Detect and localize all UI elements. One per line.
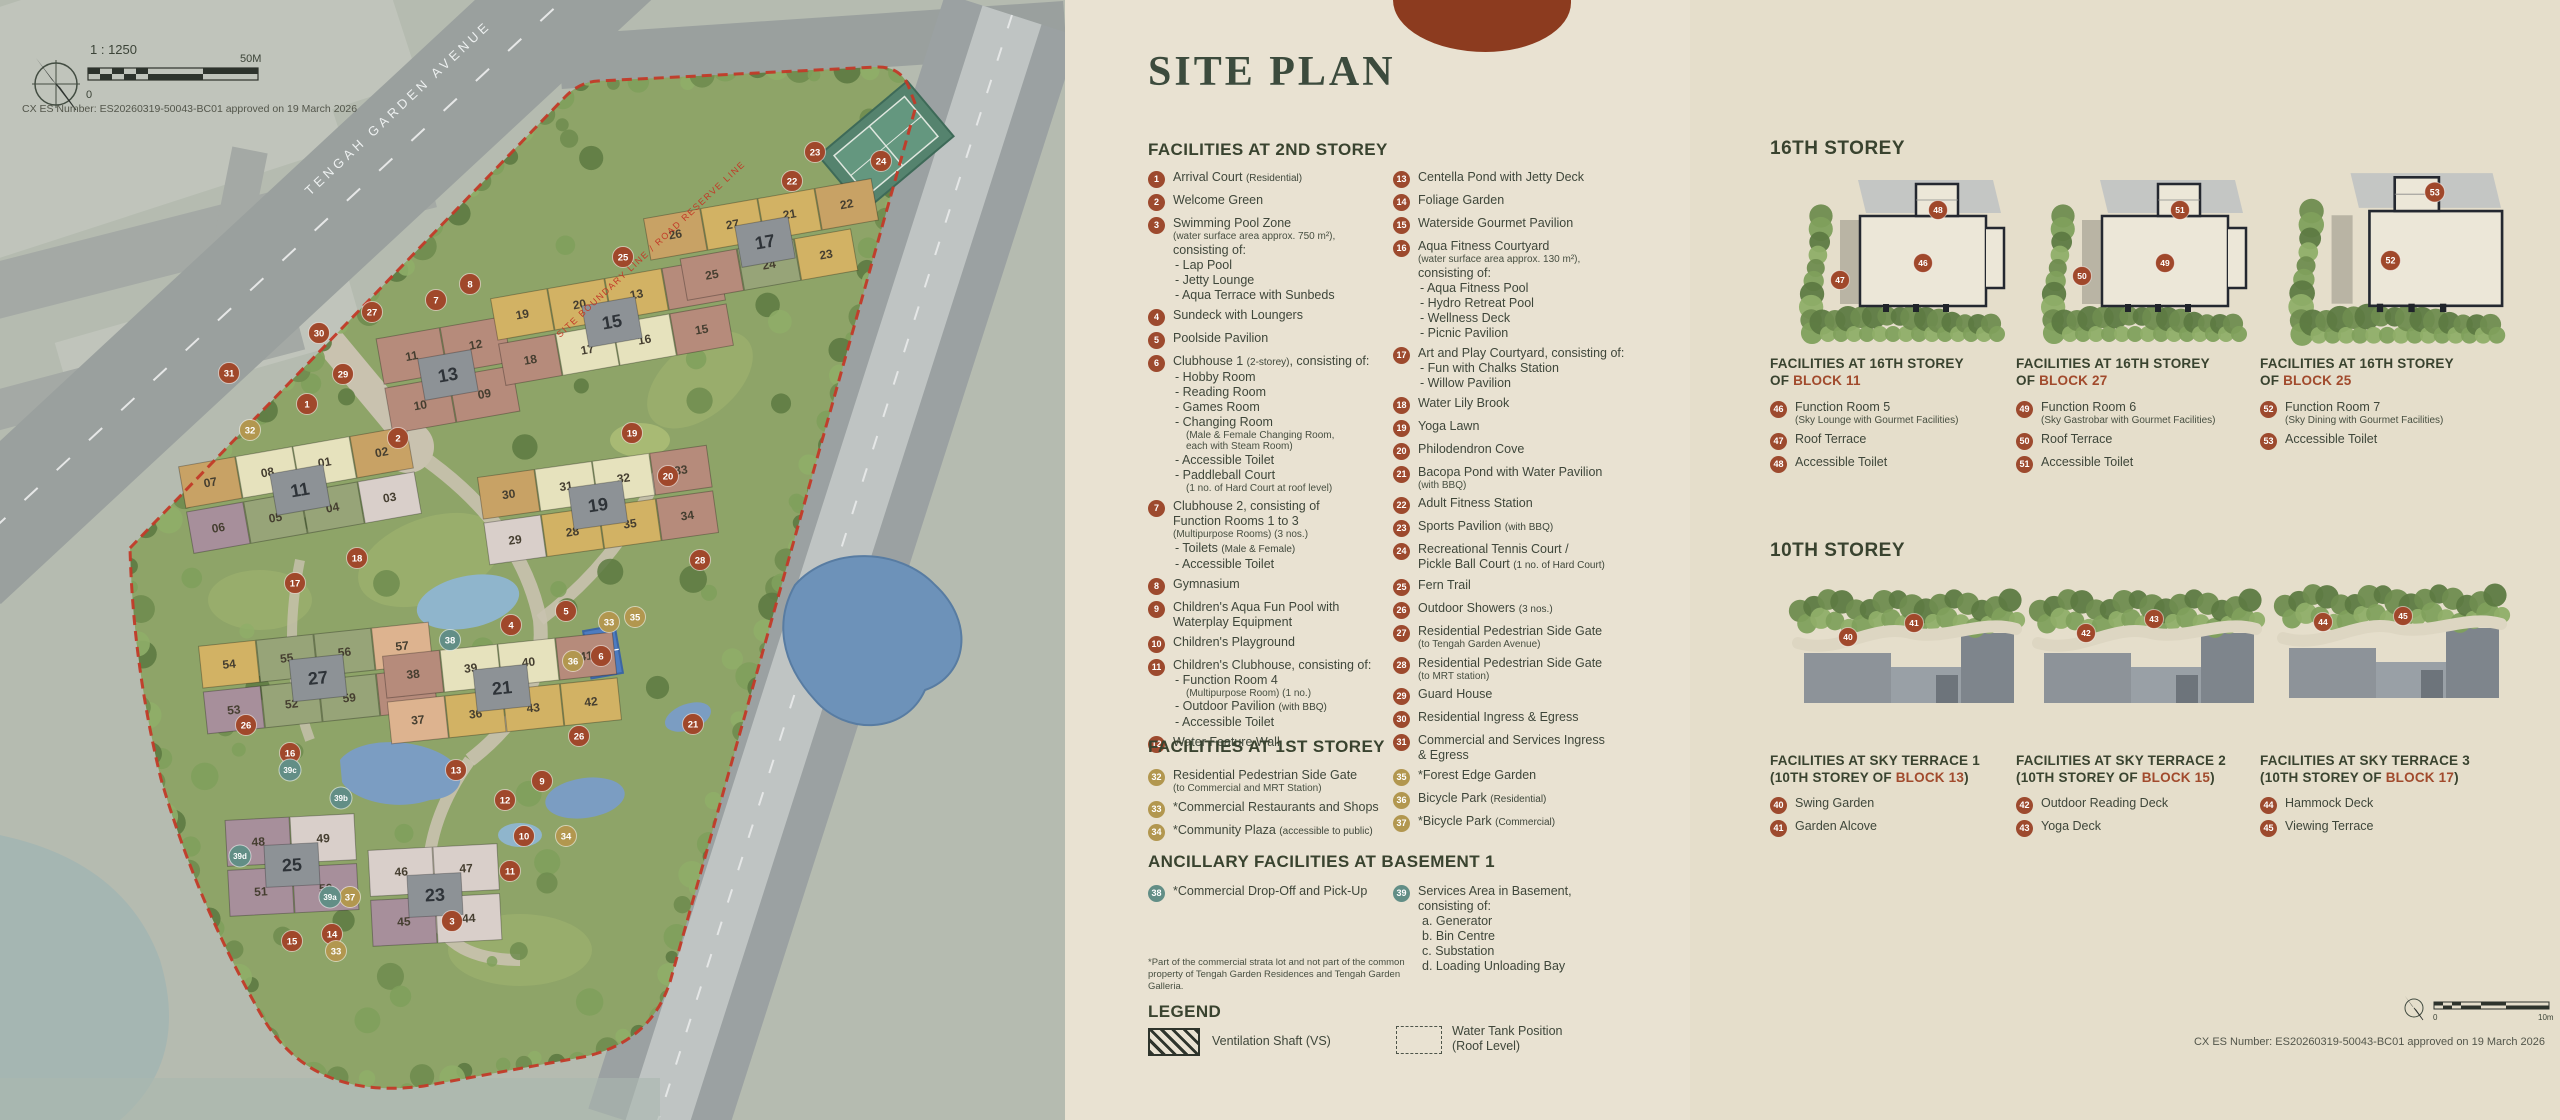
scale-zero: 0 — [86, 89, 92, 101]
facility-item-36: 36Bicycle Park (Residential) — [1393, 791, 1653, 809]
svg-text:22: 22 — [787, 177, 798, 188]
svg-text:44: 44 — [2318, 617, 2328, 627]
facility-list-block-25: 52Function Room 7(Sky Dining with Gourme… — [2260, 400, 2495, 450]
water-tank-label: Water Tank Position (Roof Level) — [1452, 1024, 1562, 1054]
facility-item-13: 13Centella Pond with Jetty Deck — [1393, 170, 1653, 188]
svg-text:38: 38 — [406, 667, 421, 682]
svg-text:48: 48 — [251, 834, 265, 849]
heading-16th-storey: 16TH STOREY — [1770, 138, 1905, 160]
facility-item-9: 9Children's Aqua Fun Pool withWaterplay … — [1148, 600, 1392, 630]
facility-badge-47: 47 — [1770, 433, 1787, 450]
ventilation-shaft-swatch — [1148, 1028, 1200, 1056]
facility-item-49: 49Function Room 6(Sky Gastrobar with Gou… — [2016, 400, 2251, 427]
facility-item-16: 16Aqua Fitness Courtyard(water surface a… — [1393, 239, 1653, 341]
plan-badge-42: 42 — [2077, 624, 2096, 643]
svg-text:17: 17 — [753, 230, 776, 253]
svg-text:27: 27 — [307, 667, 329, 689]
floorplan-16th-block-27: 514950 — [2030, 158, 2265, 348]
plan-badge-40: 40 — [1839, 628, 1858, 647]
map-badge-35: 35 — [625, 607, 646, 628]
facility-badge-16: 16 — [1393, 240, 1410, 257]
facility-badge-33: 33 — [1148, 801, 1165, 818]
svg-text:51: 51 — [2175, 205, 2185, 215]
facility-badge-15: 15 — [1393, 217, 1410, 234]
facility-list-block-27: 49Function Room 6(Sky Gastrobar with Gou… — [2016, 400, 2251, 473]
svg-text:34: 34 — [680, 508, 695, 524]
svg-text:39c: 39c — [283, 766, 297, 775]
facility-badge-38: 38 — [1148, 885, 1165, 902]
facility-badge-19: 19 — [1393, 420, 1410, 437]
map-badge-31: 31 — [219, 363, 240, 384]
facility-badge-6: 6 — [1148, 355, 1165, 372]
facility-badge-53: 53 — [2260, 433, 2277, 450]
facility-item-35: 35*Forest Edge Garden — [1393, 768, 1653, 786]
facility-item-47: 47Roof Terrace — [1770, 432, 2005, 450]
svg-text:6: 6 — [598, 652, 603, 663]
svg-text:15: 15 — [600, 310, 623, 333]
facility-list-sky-terrace-3: 44Hammock Deck45Viewing Terrace — [2260, 796, 2495, 837]
facility-item-22: 22Adult Fitness Station — [1393, 496, 1653, 514]
svg-text:46: 46 — [1918, 258, 1928, 268]
floorplan-10th-sky-terrace-2: 4243 — [2026, 575, 2266, 715]
svg-text:45: 45 — [2398, 611, 2408, 621]
facility-item-41: 41Garden Alcove — [1770, 819, 2005, 837]
svg-text:5: 5 — [563, 607, 569, 618]
svg-text:9: 9 — [539, 777, 544, 788]
plan-badge-53: 53 — [2425, 182, 2445, 202]
svg-text:15: 15 — [287, 937, 298, 948]
svg-text:21: 21 — [688, 720, 699, 731]
facility-badge-23: 23 — [1393, 520, 1410, 537]
facility-item-42: 42Outdoor Reading Deck — [2016, 796, 2251, 814]
right-scale-group: 0 10m — [2400, 990, 2560, 1026]
map-badge-3: 3 — [442, 911, 463, 932]
facility-badge-3: 3 — [1148, 217, 1165, 234]
facility-list-basement-col2: 39Services Area in Basement,consisting o… — [1393, 884, 1659, 979]
facility-list-block-11: 46Function Room 5(Sky Lounge with Gourme… — [1770, 400, 2005, 473]
svg-text:23: 23 — [424, 884, 445, 905]
plan-badge-49: 49 — [2156, 254, 2175, 273]
plan-badge-52: 52 — [2381, 251, 2401, 271]
map-badge-28: 28 — [690, 550, 711, 571]
heading-2nd-storey: FACILITIES AT 2ND STOREY — [1148, 140, 1388, 160]
facility-item-39: 39Services Area in Basement,consisting o… — [1393, 884, 1659, 974]
plan-badge-46: 46 — [1914, 254, 1933, 273]
facilities-group-block-11: FACILITIES AT 16TH STOREYOF BLOCK 1146Fu… — [1770, 355, 2005, 478]
facility-badge-2: 2 — [1148, 194, 1165, 211]
facility-badge-44: 44 — [2260, 797, 2277, 814]
map-badge-1: 1 — [297, 394, 318, 415]
svg-text:44: 44 — [462, 911, 476, 926]
svg-text:11: 11 — [505, 867, 516, 878]
svg-text:26: 26 — [241, 721, 252, 732]
svg-text:57: 57 — [395, 638, 410, 653]
map-badge-24: 24 — [871, 151, 892, 172]
map-badge-26: 26 — [569, 726, 590, 747]
facility-item-44: 44Hammock Deck — [2260, 796, 2495, 814]
heading-basement: ANCILLARY FACILITIES AT BASEMENT 1 — [1148, 852, 1495, 872]
map-badge-27: 27 — [362, 302, 383, 323]
facility-badge-29: 29 — [1393, 688, 1410, 705]
map-badge-19: 19 — [622, 423, 643, 444]
facility-item-8: 8Gymnasium — [1148, 577, 1392, 595]
svg-text:10: 10 — [519, 832, 530, 843]
plan-badge-43: 43 — [2145, 610, 2164, 629]
svg-text:23: 23 — [818, 246, 834, 262]
facility-badge-22: 22 — [1393, 497, 1410, 514]
svg-text:8: 8 — [467, 280, 472, 291]
facility-badge-5: 5 — [1148, 332, 1165, 349]
svg-text:03: 03 — [382, 489, 398, 505]
map-badge-7: 7 — [426, 290, 447, 311]
floorplan-16th-block-25: 5352 — [2268, 150, 2533, 350]
facility-item-6: 6Clubhouse 1 (2-storey), consisting of:-… — [1148, 354, 1392, 495]
facility-item-48: 48Accessible Toilet — [1770, 455, 2005, 473]
facility-badge-32: 32 — [1148, 769, 1165, 786]
map-badge-20: 20 — [658, 466, 679, 487]
svg-text:33: 33 — [604, 618, 615, 629]
map-badge-34: 34 — [556, 826, 577, 847]
svg-text:29: 29 — [507, 532, 522, 548]
svg-text:50: 50 — [2077, 271, 2087, 281]
facility-badge-28: 28 — [1393, 657, 1410, 674]
svg-text:18: 18 — [523, 352, 539, 368]
facility-item-28: 28Residential Pedestrian Side Gate(to MR… — [1393, 656, 1653, 683]
svg-text:39d: 39d — [233, 852, 247, 861]
svg-text:18: 18 — [352, 554, 363, 565]
svg-text:53: 53 — [227, 702, 242, 717]
svg-text:25: 25 — [704, 267, 720, 283]
map-badge-4: 4 — [501, 615, 522, 636]
facility-item-37: 37*Bicycle Park (Commercial) — [1393, 814, 1653, 832]
facility-badge-35: 35 — [1393, 769, 1410, 786]
map-badge-36: 36 — [563, 651, 584, 672]
plan-badge-41: 41 — [1905, 614, 1924, 633]
svg-text:29: 29 — [338, 370, 349, 381]
facility-item-46: 46Function Room 5(Sky Lounge with Gourme… — [1770, 400, 2005, 427]
svg-text:41: 41 — [1909, 618, 1919, 628]
facility-item-51: 51Accessible Toilet — [2016, 455, 2251, 473]
floorplan-10th-sky-terrace-3: 4445 — [2266, 570, 2516, 710]
facility-list-2nd-col1: 1Arrival Court (Residential)2Welcome Gre… — [1148, 170, 1392, 758]
facility-item-4: 4Sundeck with Loungers — [1148, 308, 1392, 326]
svg-text:39a: 39a — [323, 893, 337, 902]
svg-text:37: 37 — [411, 712, 426, 727]
svg-text:20: 20 — [663, 472, 674, 483]
plan-badge-48: 48 — [1929, 201, 1948, 220]
facility-badge-10: 10 — [1148, 636, 1165, 653]
facility-item-23: 23Sports Pavilion (with BBQ) — [1393, 519, 1653, 537]
svg-text:02: 02 — [374, 444, 390, 460]
map-badge-17: 17 — [285, 573, 306, 594]
facility-badge-41: 41 — [1770, 820, 1787, 837]
svg-text:27: 27 — [367, 308, 378, 319]
facility-badge-13: 13 — [1393, 171, 1410, 188]
facility-badge-50: 50 — [2016, 433, 2033, 450]
map-badge-2: 2 — [388, 428, 409, 449]
facility-item-52: 52Function Room 7(Sky Dining with Gourme… — [2260, 400, 2495, 427]
facility-badge-4: 4 — [1148, 309, 1165, 326]
svg-text:17: 17 — [290, 579, 301, 590]
map-badge-13: 13 — [446, 760, 467, 781]
group-heading-sky-terrace-1: FACILITIES AT SKY TERRACE 1(10TH STOREY … — [1770, 752, 2005, 786]
group-heading-block-27: FACILITIES AT 16TH STOREYOF BLOCK 27 — [2016, 355, 2251, 389]
plan-badge-50: 50 — [2073, 267, 2092, 286]
facility-list-1st-col2: 35*Forest Edge Garden36Bicycle Park (Res… — [1393, 768, 1653, 837]
svg-text:4: 4 — [508, 621, 514, 632]
facility-badge-20: 20 — [1393, 443, 1410, 460]
svg-text:49: 49 — [2160, 258, 2170, 268]
svg-text:21: 21 — [491, 677, 513, 699]
facility-item-38: 38*Commercial Drop-Off and Pick-Up — [1148, 884, 1392, 902]
svg-text:37: 37 — [345, 893, 356, 904]
svg-text:52: 52 — [2386, 256, 2396, 266]
facility-item-53: 53Accessible Toilet — [2260, 432, 2495, 450]
svg-text:1: 1 — [304, 400, 310, 411]
svg-text:06: 06 — [211, 520, 227, 536]
svg-text:28: 28 — [695, 556, 706, 567]
facility-item-3: 3Swimming Pool Zone(water surface area a… — [1148, 216, 1392, 303]
facility-badge-31: 31 — [1393, 734, 1410, 751]
map-badge-22: 22 — [782, 171, 803, 192]
facility-item-20: 20Philodendron Cove — [1393, 442, 1653, 460]
facility-item-7: 7Clubhouse 2, consisting ofFunction Room… — [1148, 499, 1392, 572]
facility-list-1st-col1: 32Residential Pedestrian Side Gate(to Co… — [1148, 768, 1392, 846]
map-badge-39c: 39c — [279, 759, 301, 781]
svg-text:42: 42 — [584, 694, 599, 709]
map-badge-39a: 39a — [319, 886, 341, 908]
facility-item-40: 40Swing Garden — [1770, 796, 2005, 814]
svg-text:07: 07 — [203, 474, 219, 490]
svg-text:35: 35 — [630, 613, 641, 624]
plan-badge-47: 47 — [1831, 271, 1850, 290]
heading-1st-storey: FACILITIES AT 1ST STOREY — [1148, 737, 1385, 757]
map-badge-23: 23 — [805, 142, 826, 163]
facility-item-45: 45Viewing Terrace — [2260, 819, 2495, 837]
svg-text:19: 19 — [627, 429, 638, 440]
facility-badge-26: 26 — [1393, 602, 1410, 619]
facility-list-sky-terrace-2: 42Outdoor Reading Deck43Yoga Deck — [2016, 796, 2251, 837]
plan-badge-45: 45 — [2394, 607, 2413, 626]
map-badge-11: 11 — [500, 861, 521, 882]
facility-item-33: 33*Commercial Restaurants and Shops — [1148, 800, 1392, 818]
facility-badge-39: 39 — [1393, 885, 1410, 902]
right-approval-text: CX ES Number: ES20260319-50043-BC01 appr… — [2145, 1036, 2545, 1048]
plan-badge-44: 44 — [2314, 613, 2333, 632]
svg-text:3: 3 — [449, 917, 454, 928]
svg-text:30: 30 — [314, 329, 325, 340]
facility-item-14: 14Foliage Garden — [1393, 193, 1653, 211]
facility-badge-14: 14 — [1393, 194, 1410, 211]
facility-item-31: 31Commercial and Services Ingress& Egres… — [1393, 733, 1653, 763]
floorplan-16th-block-11: 484647 — [1788, 158, 2023, 348]
facilities-group-sky-terrace-1: FACILITIES AT SKY TERRACE 1(10TH STOREY … — [1770, 752, 2005, 842]
facility-badge-48: 48 — [1770, 456, 1787, 473]
svg-text:19: 19 — [587, 494, 610, 517]
facility-item-34: 34*Community Plaza (accessible to public… — [1148, 823, 1392, 841]
facility-badge-8: 8 — [1148, 578, 1165, 595]
svg-text:46: 46 — [394, 864, 408, 879]
facilities-group-block-25: FACILITIES AT 16TH STOREYOF BLOCK 2552Fu… — [2260, 355, 2495, 455]
facility-item-21: 21Bacopa Pond with Water Pavilion(with B… — [1393, 465, 1653, 492]
ventilation-shaft-label: Ventilation Shaft (VS) — [1212, 1034, 1331, 1049]
svg-text:14: 14 — [327, 930, 338, 941]
svg-text:13: 13 — [451, 766, 462, 777]
facility-list-2nd-col2: 13Centella Pond with Jetty Deck14Foliage… — [1393, 170, 1653, 768]
svg-text:16: 16 — [285, 749, 296, 760]
svg-text:22: 22 — [839, 196, 855, 212]
floorplan-10th-sky-terrace-1: 4041 — [1786, 575, 2026, 715]
facility-badge-1: 1 — [1148, 171, 1165, 188]
svg-text:25: 25 — [281, 854, 302, 875]
facility-badge-27: 27 — [1393, 625, 1410, 642]
group-heading-sky-terrace-3: FACILITIES AT SKY TERRACE 3(10TH STOREY … — [2260, 752, 2495, 786]
svg-text:15: 15 — [694, 321, 710, 337]
building-cluster-23: 4647454423 — [368, 844, 502, 947]
svg-text:12: 12 — [500, 796, 511, 807]
facilities-group-sky-terrace-3: FACILITIES AT SKY TERRACE 3(10TH STOREY … — [2260, 752, 2495, 842]
facility-item-19: 19Yoga Lawn — [1393, 419, 1653, 437]
facility-badge-45: 45 — [2260, 820, 2277, 837]
facility-badge-21: 21 — [1393, 466, 1410, 483]
svg-text:25: 25 — [618, 253, 629, 264]
facility-item-15: 15Waterside Gourmet Pavilion — [1393, 216, 1653, 234]
map-badge-18: 18 — [347, 548, 368, 569]
svg-text:31: 31 — [224, 369, 235, 380]
facility-badge-17: 17 — [1393, 347, 1410, 364]
svg-text:13: 13 — [436, 363, 459, 386]
group-heading-sky-terrace-2: FACILITIES AT SKY TERRACE 2(10TH STOREY … — [2016, 752, 2251, 786]
facility-badge-46: 46 — [1770, 401, 1787, 418]
scale2-max: 10m — [2538, 1013, 2554, 1022]
facilities-group-sky-terrace-2: FACILITIES AT SKY TERRACE 2(10TH STOREY … — [2016, 752, 2251, 842]
facility-badge-9: 9 — [1148, 601, 1165, 618]
facility-badge-42: 42 — [2016, 797, 2033, 814]
svg-text:24: 24 — [876, 157, 887, 168]
svg-text:32: 32 — [245, 426, 256, 437]
map-badge-26: 26 — [236, 715, 257, 736]
svg-text:48: 48 — [1933, 205, 1943, 215]
page-title: SITE PLAN — [1148, 48, 1396, 96]
svg-text:54: 54 — [222, 657, 237, 672]
svg-text:7: 7 — [433, 296, 438, 307]
map-badge-8: 8 — [460, 274, 481, 295]
facility-item-43: 43Yoga Deck — [2016, 819, 2251, 837]
svg-text:36: 36 — [568, 657, 579, 668]
facility-item-30: 30Residential Ingress & Egress — [1393, 710, 1653, 728]
facility-badge-11: 11 — [1148, 659, 1165, 676]
map-badge-9: 9 — [532, 771, 553, 792]
svg-text:33: 33 — [331, 947, 342, 958]
map-badge-6: 6 — [591, 646, 612, 667]
water-tank-swatch — [1396, 1026, 1442, 1054]
scale-max: 50M — [240, 53, 261, 65]
facility-item-18: 18Water Lily Brook — [1393, 396, 1653, 414]
map-badge-21: 21 — [683, 714, 704, 735]
facility-badge-34: 34 — [1148, 824, 1165, 841]
group-heading-block-11: FACILITIES AT 16TH STOREYOF BLOCK 11 — [1770, 355, 2005, 389]
map-badge-30: 30 — [309, 323, 330, 344]
facility-item-27: 27Residential Pedestrian Side Gate(to Te… — [1393, 624, 1653, 651]
map-badge-12: 12 — [495, 790, 516, 811]
facility-badge-36: 36 — [1393, 792, 1410, 809]
map-badge-39b: 39b — [330, 787, 352, 809]
scale2-zero: 0 — [2433, 1013, 2438, 1022]
facilities-group-block-27: FACILITIES AT 16TH STOREYOF BLOCK 2749Fu… — [2016, 355, 2251, 478]
facility-badge-43: 43 — [2016, 820, 2033, 837]
svg-text:11: 11 — [289, 478, 311, 501]
map-badge-10: 10 — [514, 826, 535, 847]
facility-item-29: 29Guard House — [1393, 687, 1653, 705]
facility-item-2: 2Welcome Green — [1148, 193, 1392, 211]
svg-text:47: 47 — [1835, 275, 1845, 285]
north-arrow-icon — [2405, 996, 2423, 1020]
svg-text:19: 19 — [515, 306, 531, 322]
svg-text:2: 2 — [395, 434, 400, 445]
facility-item-32: 32Residential Pedestrian Side Gate(to Co… — [1148, 768, 1392, 795]
facility-badge-37: 37 — [1393, 815, 1410, 832]
site-plan-page: 0708010206050403111112100913192013141817… — [0, 0, 2560, 1120]
facility-badge-7: 7 — [1148, 500, 1165, 517]
svg-text:40: 40 — [1843, 632, 1853, 642]
map-badge-29: 29 — [333, 364, 354, 385]
facility-item-5: 5Poolside Pavilion — [1148, 331, 1392, 349]
map-badge-32: 32 — [240, 420, 261, 441]
svg-text:43: 43 — [2149, 614, 2159, 624]
svg-text:38: 38 — [445, 636, 456, 647]
svg-text:23: 23 — [810, 148, 821, 159]
facility-badge-24: 24 — [1393, 543, 1410, 560]
map-badge-15: 15 — [282, 931, 303, 952]
svg-text:53: 53 — [2430, 187, 2440, 197]
map-badge-33: 33 — [599, 612, 620, 633]
facility-item-11: 11Children's Clubhouse, consisting of:- … — [1148, 658, 1392, 731]
facility-badge-18: 18 — [1393, 397, 1410, 414]
facility-item-24: 24Recreational Tennis Court /Pickle Ball… — [1393, 542, 1653, 573]
facility-badge-51: 51 — [2016, 456, 2033, 473]
facility-badge-49: 49 — [2016, 401, 2033, 418]
facility-list-sky-terrace-1: 40Swing Garden41Garden Alcove — [1770, 796, 2005, 837]
facility-item-26: 26Outdoor Showers (3 nos.) — [1393, 601, 1653, 619]
map-badge-38: 38 — [440, 630, 461, 651]
site-plan-map: 0708010206050403111112100913192013141817… — [0, 0, 1065, 1120]
facility-item-17: 17Art and Play Courtyard, consisting of:… — [1393, 346, 1653, 391]
heading-10th-storey: 10TH STOREY — [1770, 540, 1905, 562]
map-approval-text: CX ES Number: ES20260319-50043-BC01 appr… — [22, 103, 357, 115]
facility-badge-40: 40 — [1770, 797, 1787, 814]
svg-text:26: 26 — [574, 732, 585, 743]
svg-text:09: 09 — [477, 386, 493, 402]
heading-legend: LEGEND — [1148, 1002, 1221, 1022]
facility-item-25: 25Fern Trail — [1393, 578, 1653, 596]
plan-badge-51: 51 — [2171, 201, 2190, 220]
svg-text:34: 34 — [561, 832, 572, 843]
scale-bar — [2434, 1002, 2549, 1009]
map-badge-33: 33 — [326, 941, 347, 962]
map-badge-5: 5 — [556, 601, 577, 622]
scale-ratio: 1 : 1250 — [90, 42, 137, 57]
facility-badge-52: 52 — [2260, 401, 2277, 418]
facility-list-basement-col1: 38*Commercial Drop-Off and Pick-Up — [1148, 884, 1392, 907]
facility-item-10: 10Children's Playground — [1148, 635, 1392, 653]
group-heading-block-25: FACILITIES AT 16TH STOREYOF BLOCK 25 — [2260, 355, 2495, 389]
svg-text:39b: 39b — [334, 794, 348, 803]
svg-text:30: 30 — [501, 486, 516, 502]
facility-item-50: 50Roof Terrace — [2016, 432, 2251, 450]
facility-badge-30: 30 — [1393, 711, 1410, 728]
map-badge-39d: 39d — [229, 845, 251, 867]
facility-badge-25: 25 — [1393, 579, 1410, 596]
